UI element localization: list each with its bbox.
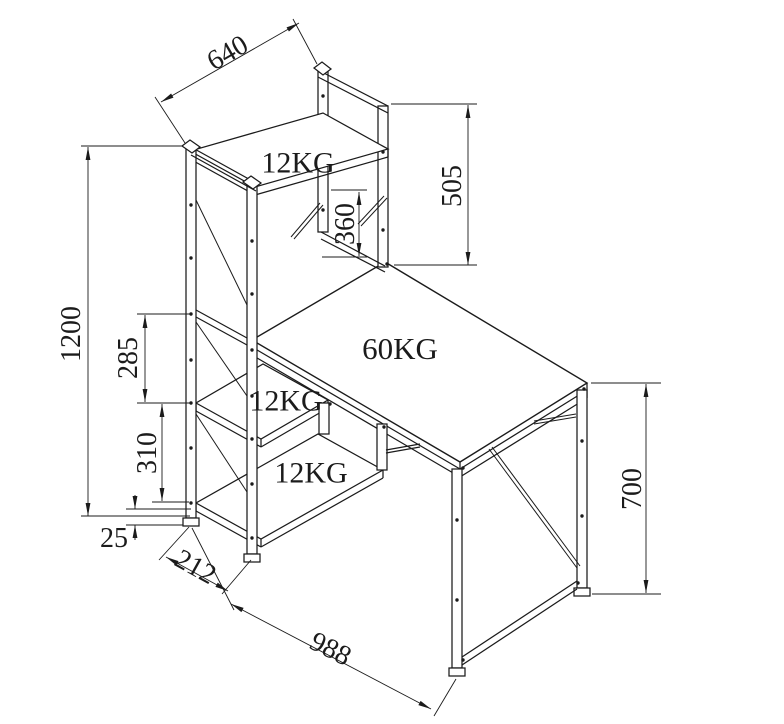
frame-line	[492, 447, 580, 566]
fastener-dot	[582, 387, 585, 390]
dimension-text-640: 640	[202, 29, 254, 77]
fastener-dot	[580, 439, 583, 442]
fastener-dot	[250, 292, 253, 295]
front-leg	[452, 469, 462, 668]
frame-line	[462, 589, 577, 665]
fastener-dot	[580, 514, 583, 517]
fastener-dot	[250, 536, 253, 539]
dimension-text-25: 25	[100, 523, 128, 554]
tower-right-foot	[244, 554, 260, 562]
top-shelf-load: 12KG	[261, 147, 334, 180]
fastener-dot	[455, 518, 458, 521]
front-leg-foot	[449, 668, 465, 676]
fastener-dot	[189, 501, 192, 504]
right-leg	[577, 390, 587, 588]
frame-line	[196, 200, 247, 305]
dimension-text-700: 700	[617, 468, 648, 510]
fastener-dot	[385, 262, 388, 265]
middle-shelf-load: 12KG	[249, 385, 322, 418]
fastener-dot	[321, 208, 324, 211]
fastener-dot	[381, 228, 384, 231]
dimension-text-285: 285	[113, 337, 144, 379]
extension-line	[293, 19, 317, 64]
fastener-dot	[250, 437, 253, 440]
extension-line	[434, 679, 456, 716]
fastener-dot	[382, 425, 385, 428]
bottom-shelf-load: 12KG	[274, 457, 347, 490]
dimension-212: 212	[159, 527, 251, 594]
fastener-dot	[250, 348, 253, 351]
dimension-988: 988	[192, 528, 456, 716]
tower-left-foot	[183, 518, 199, 526]
frame-line	[489, 449, 577, 568]
fastener-dot	[381, 150, 384, 153]
diagram-svg: 64050536012002853102521298870012KG60KG12…	[0, 0, 784, 724]
frame-line	[291, 203, 320, 237]
fastener-dot	[250, 239, 253, 242]
dimension-700: 700	[591, 383, 661, 594]
dimension-1200: 1200	[56, 146, 190, 516]
dimension-505: 505	[391, 104, 477, 265]
dimension-310: 310	[132, 404, 189, 502]
fastener-dot	[189, 446, 192, 449]
dimension-text-360: 360	[330, 203, 361, 245]
desk-shelf-dimension-diagram: 64050536012002853102521298870012KG60KG12…	[0, 0, 784, 724]
structure	[182, 62, 590, 676]
hutch-back-right-post	[378, 106, 388, 267]
fastener-dot	[461, 466, 464, 469]
dimension-text-310: 310	[132, 432, 163, 474]
fastener-dot	[189, 358, 192, 361]
frame-line	[462, 581, 577, 657]
desktop-load: 60KG	[362, 331, 438, 366]
frame-line	[386, 444, 420, 450]
fastener-dot	[321, 94, 324, 97]
extension-line	[222, 560, 251, 594]
fastener-dot	[250, 482, 253, 485]
fastener-dot	[461, 658, 464, 661]
dimension-25: 25	[100, 495, 191, 554]
frame-line	[196, 317, 247, 345]
dimension-text-212: 212	[169, 543, 221, 590]
extension-line	[155, 97, 185, 143]
technical-drawing-page: 64050536012002853102521298870012KG60KG12…	[0, 0, 784, 724]
fastener-dot	[189, 203, 192, 206]
dimension-285: 285	[113, 314, 191, 403]
fastener-dot	[328, 402, 331, 405]
fastener-dot	[189, 256, 192, 259]
fastener-dot	[576, 581, 579, 584]
dimension-text-1200: 1200	[56, 306, 87, 362]
shelf-hanger-post-outer	[377, 424, 387, 470]
fastener-dot	[455, 598, 458, 601]
dimension-text-505: 505	[437, 165, 468, 207]
dimension-360: 360	[322, 190, 367, 257]
frame-line	[534, 414, 576, 421]
